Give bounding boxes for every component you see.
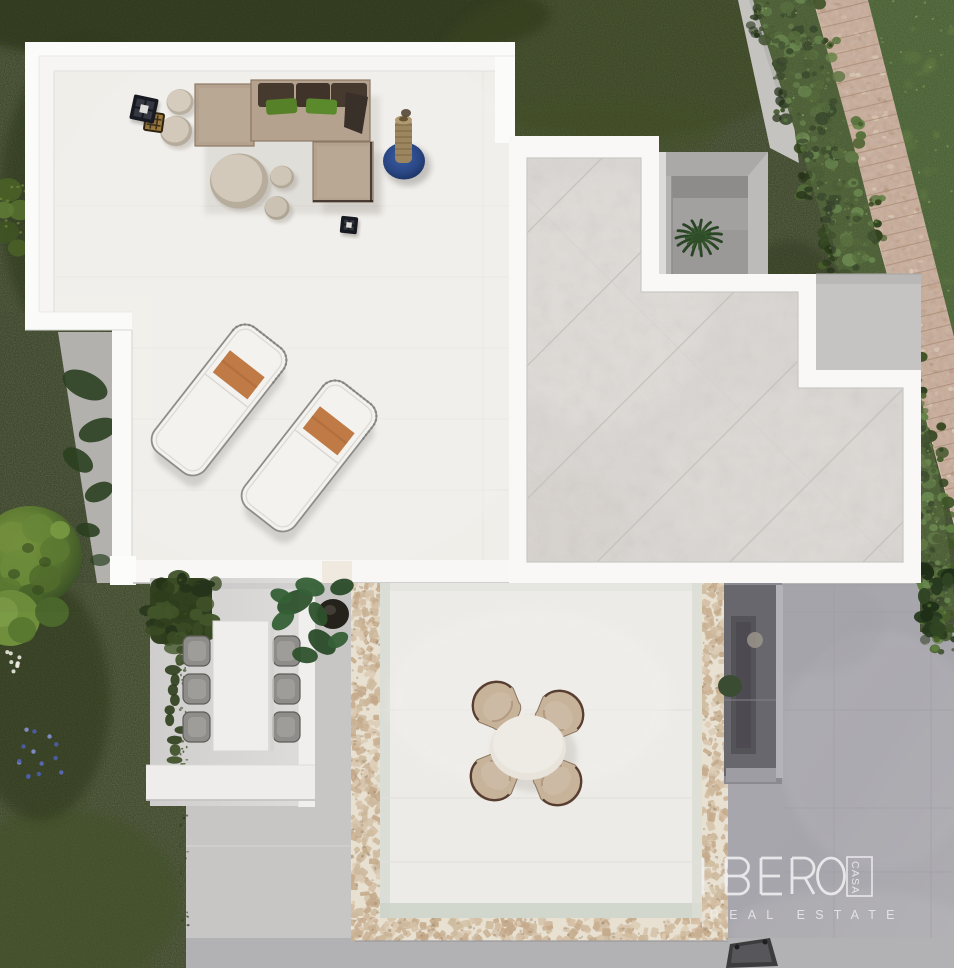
svg-text:CASA: CASA — [849, 861, 861, 894]
svg-text:REAL ESTATE: REAL ESTATE — [710, 908, 905, 922]
